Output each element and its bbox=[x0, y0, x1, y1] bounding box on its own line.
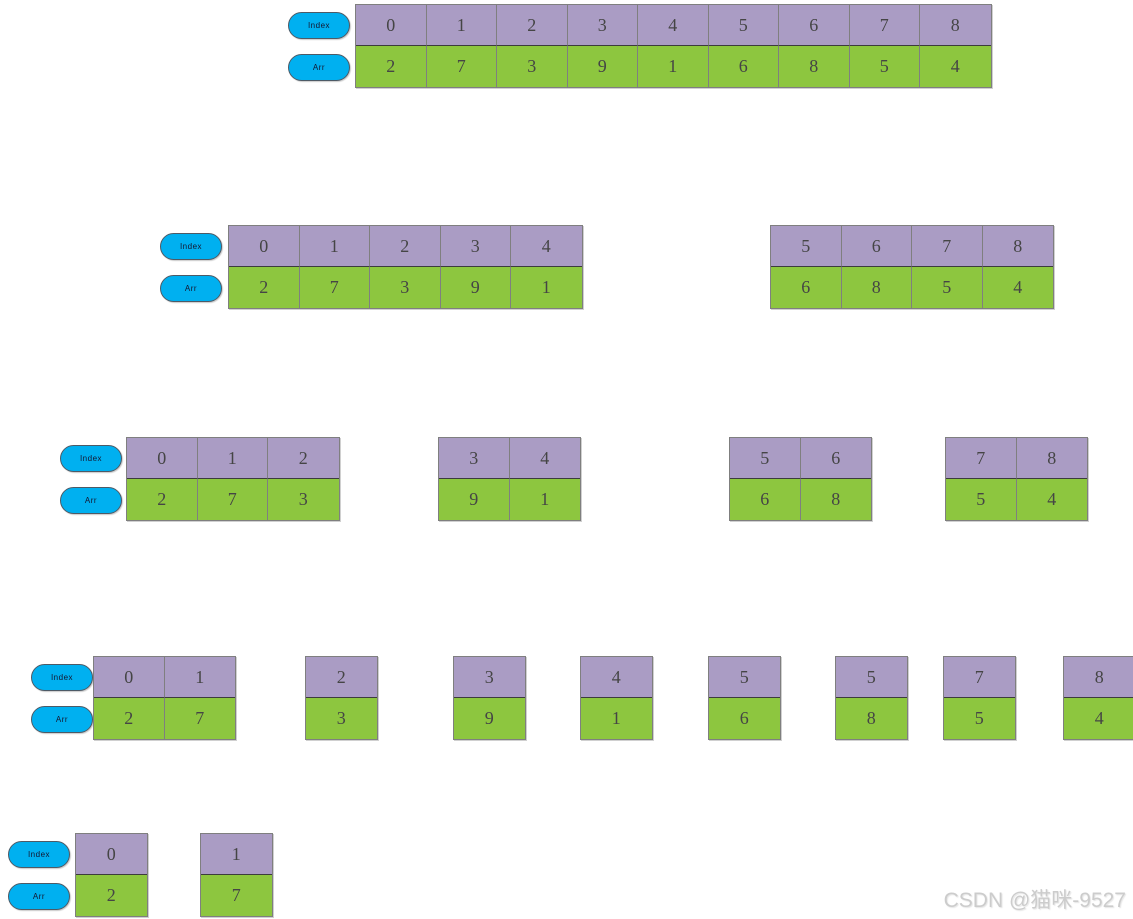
index-cell: 8 bbox=[1064, 657, 1133, 698]
array-segment-row5-group1: 02 bbox=[75, 833, 148, 917]
index-cell: 2 bbox=[370, 226, 441, 267]
index-sub-row: 56 bbox=[730, 438, 871, 479]
index-cell: 5 bbox=[771, 226, 842, 267]
index-sub-row: 78 bbox=[946, 438, 1087, 479]
index-sub-row: 7 bbox=[944, 657, 1015, 698]
arr-row-label-pill: Arr bbox=[8, 883, 70, 910]
index-cell: 7 bbox=[946, 438, 1017, 479]
arr-sub-row: 68 bbox=[730, 479, 871, 520]
index-cell: 8 bbox=[1017, 438, 1088, 479]
index-cell: 1 bbox=[427, 5, 498, 46]
index-sub-row: 34 bbox=[439, 438, 580, 479]
index-cell: 5 bbox=[709, 5, 780, 46]
arr-row-label-pill: Arr bbox=[31, 706, 93, 733]
arr-cell: 6 bbox=[709, 698, 780, 739]
index-cell: 3 bbox=[441, 226, 512, 267]
arr-sub-row: 3 bbox=[306, 698, 377, 739]
array-segment-row4-group2: 23 bbox=[305, 656, 378, 740]
array-segment-row3-group4: 7854 bbox=[945, 437, 1088, 521]
arr-cell: 7 bbox=[300, 267, 371, 308]
arr-sub-row: 6 bbox=[709, 698, 780, 739]
array-segment-row4-group5: 56 bbox=[708, 656, 781, 740]
arr-sub-row: 91 bbox=[439, 479, 580, 520]
index-cell: 4 bbox=[510, 438, 581, 479]
index-cell: 2 bbox=[268, 438, 339, 479]
index-cell: 1 bbox=[165, 657, 236, 698]
index-cell: 1 bbox=[198, 438, 269, 479]
array-segment-row3-group3: 5668 bbox=[729, 437, 872, 521]
arr-cell: 4 bbox=[920, 46, 991, 87]
index-cell: 4 bbox=[638, 5, 709, 46]
index-sub-row: 8 bbox=[1064, 657, 1133, 698]
array-segment-row4-group4: 41 bbox=[580, 656, 653, 740]
array-segment-row1-group1: 012345678273916854 bbox=[355, 4, 992, 88]
arr-row-label-pill: Arr bbox=[60, 487, 122, 514]
index-cell: 0 bbox=[229, 226, 300, 267]
arr-cell: 5 bbox=[946, 479, 1017, 520]
arr-cell: 4 bbox=[1064, 698, 1133, 739]
index-cell: 7 bbox=[944, 657, 1015, 698]
index-cell: 0 bbox=[76, 834, 147, 875]
index-sub-row: 5 bbox=[836, 657, 907, 698]
array-segment-row4-group7: 75 bbox=[943, 656, 1016, 740]
index-cell: 4 bbox=[581, 657, 652, 698]
index-cell: 7 bbox=[912, 226, 983, 267]
index-sub-row: 012345678 bbox=[356, 5, 991, 46]
arr-sub-row: 9 bbox=[454, 698, 525, 739]
arr-sub-row: 1 bbox=[581, 698, 652, 739]
index-sub-row: 5678 bbox=[771, 226, 1053, 267]
arr-sub-row: 5 bbox=[944, 698, 1015, 739]
arr-sub-row: 8 bbox=[836, 698, 907, 739]
arr-cell: 7 bbox=[165, 698, 236, 739]
arr-cell: 4 bbox=[1017, 479, 1088, 520]
index-cell: 6 bbox=[779, 5, 850, 46]
arr-cell: 5 bbox=[944, 698, 1015, 739]
arr-sub-row: 273 bbox=[127, 479, 339, 520]
arr-cell: 3 bbox=[370, 267, 441, 308]
index-cell: 0 bbox=[356, 5, 427, 46]
index-cell: 8 bbox=[983, 226, 1054, 267]
arr-cell: 3 bbox=[306, 698, 377, 739]
arr-cell: 8 bbox=[836, 698, 907, 739]
index-cell: 6 bbox=[842, 226, 913, 267]
index-cell: 5 bbox=[836, 657, 907, 698]
index-cell: 4 bbox=[511, 226, 582, 267]
arr-sub-row: 4 bbox=[1064, 698, 1133, 739]
index-sub-row: 2 bbox=[306, 657, 377, 698]
csdn-watermark: CSDN @猫咪-9527 bbox=[944, 884, 1126, 914]
index-cell: 2 bbox=[306, 657, 377, 698]
array-segment-row4-group1: 0127 bbox=[93, 656, 236, 740]
arr-sub-row: 54 bbox=[946, 479, 1087, 520]
array-segment-row4-group3: 39 bbox=[453, 656, 526, 740]
index-sub-row: 01234 bbox=[229, 226, 582, 267]
index-sub-row: 012 bbox=[127, 438, 339, 479]
index-row-label-pill: Index bbox=[8, 841, 70, 868]
array-segment-row3-group2: 3491 bbox=[438, 437, 581, 521]
array-segment-row5-group2: 17 bbox=[200, 833, 273, 917]
arr-sub-row: 27 bbox=[94, 698, 235, 739]
array-segment-row4-group8: 84 bbox=[1063, 656, 1133, 740]
arr-cell: 4 bbox=[983, 267, 1054, 308]
array-segment-row2-group1: 0123427391 bbox=[228, 225, 583, 309]
arr-cell: 9 bbox=[454, 698, 525, 739]
arr-cell: 5 bbox=[912, 267, 983, 308]
arr-cell: 6 bbox=[709, 46, 780, 87]
arr-cell: 1 bbox=[510, 479, 581, 520]
index-cell: 3 bbox=[439, 438, 510, 479]
arr-cell: 1 bbox=[638, 46, 709, 87]
arr-cell: 9 bbox=[441, 267, 512, 308]
arr-cell: 5 bbox=[850, 46, 921, 87]
arr-cell: 7 bbox=[198, 479, 269, 520]
arr-cell: 3 bbox=[268, 479, 339, 520]
index-sub-row: 01 bbox=[94, 657, 235, 698]
index-cell: 5 bbox=[709, 657, 780, 698]
arr-cell: 7 bbox=[427, 46, 498, 87]
index-cell: 3 bbox=[454, 657, 525, 698]
index-row-label-pill: Index bbox=[288, 12, 350, 39]
index-cell: 0 bbox=[127, 438, 198, 479]
arr-row-label-pill: Arr bbox=[160, 275, 222, 302]
index-cell: 1 bbox=[300, 226, 371, 267]
array-segment-row2-group2: 56786854 bbox=[770, 225, 1054, 309]
index-sub-row: 0 bbox=[76, 834, 147, 875]
index-cell: 6 bbox=[801, 438, 872, 479]
arr-cell: 2 bbox=[356, 46, 427, 87]
arr-cell: 2 bbox=[76, 875, 147, 916]
index-sub-row: 1 bbox=[201, 834, 272, 875]
index-row-label-pill: Index bbox=[60, 445, 122, 472]
arr-cell: 8 bbox=[779, 46, 850, 87]
index-cell: 3 bbox=[568, 5, 639, 46]
arr-sub-row: 273916854 bbox=[356, 46, 991, 87]
arr-cell: 9 bbox=[439, 479, 510, 520]
arr-cell: 7 bbox=[201, 875, 272, 916]
index-cell: 1 bbox=[201, 834, 272, 875]
index-row-label-pill: Index bbox=[31, 664, 93, 691]
arr-cell: 1 bbox=[581, 698, 652, 739]
arr-cell: 1 bbox=[511, 267, 582, 308]
index-row-label-pill: Index bbox=[160, 233, 222, 260]
index-cell: 5 bbox=[730, 438, 801, 479]
arr-sub-row: 6854 bbox=[771, 267, 1053, 308]
arr-cell: 6 bbox=[771, 267, 842, 308]
arr-row-label-pill: Arr bbox=[288, 54, 350, 81]
index-cell: 8 bbox=[920, 5, 991, 46]
index-sub-row: 5 bbox=[709, 657, 780, 698]
index-sub-row: 4 bbox=[581, 657, 652, 698]
arr-sub-row: 2 bbox=[76, 875, 147, 916]
index-sub-row: 3 bbox=[454, 657, 525, 698]
index-cell: 2 bbox=[497, 5, 568, 46]
arr-cell: 9 bbox=[568, 46, 639, 87]
array-segment-row4-group6: 58 bbox=[835, 656, 908, 740]
arr-sub-row: 27391 bbox=[229, 267, 582, 308]
array-segment-row3-group1: 012273 bbox=[126, 437, 340, 521]
index-cell: 7 bbox=[850, 5, 921, 46]
merge-sort-split-diagram: IndexArr012345678273916854IndexArr012342… bbox=[0, 0, 1133, 919]
arr-cell: 2 bbox=[229, 267, 300, 308]
arr-sub-row: 7 bbox=[201, 875, 272, 916]
arr-cell: 2 bbox=[127, 479, 198, 520]
arr-cell: 8 bbox=[801, 479, 872, 520]
arr-cell: 3 bbox=[497, 46, 568, 87]
arr-cell: 6 bbox=[730, 479, 801, 520]
arr-cell: 8 bbox=[842, 267, 913, 308]
index-cell: 0 bbox=[94, 657, 165, 698]
arr-cell: 2 bbox=[94, 698, 165, 739]
